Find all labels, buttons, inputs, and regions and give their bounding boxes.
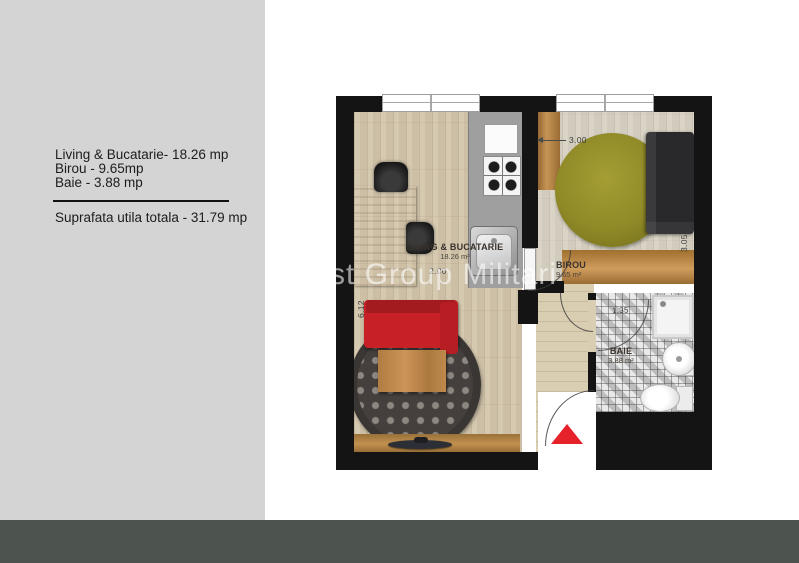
divider-line <box>53 200 229 202</box>
area-line-baie: Baie - 3.88 mp <box>55 176 255 190</box>
wall-living-birou <box>522 112 538 248</box>
floorplan-page: Living & Bucatarie- 18.26 mp Birou - 9.6… <box>0 0 799 563</box>
entrance-marker-triangle <box>551 424 583 444</box>
watermark: st Group Militari <box>330 258 799 292</box>
area-summary: Living & Bucatarie- 18.26 mp Birou - 9.6… <box>55 148 255 190</box>
bathroom-sink-drain <box>676 356 682 362</box>
dim-birou-height: 3.05 <box>679 234 689 252</box>
red-sofa-armrest <box>440 302 458 354</box>
dim-line-birou <box>540 140 566 141</box>
window-birou <box>556 94 654 112</box>
wall-corner-bottom-right <box>594 412 712 470</box>
dim-arrow-birou <box>537 137 543 143</box>
baie-label: BAIE <box>598 346 644 356</box>
shower-drain <box>660 301 666 307</box>
office-sofa <box>646 132 694 234</box>
dining-chair-top <box>374 162 408 192</box>
toilet-bowl <box>640 384 680 412</box>
footer-bar: Scara 1 - Apartament 8 <box>0 520 799 563</box>
shower-tray <box>652 295 694 339</box>
window-living <box>382 94 480 112</box>
dim-baie-width: 1.35 <box>612 306 629 316</box>
area-line-living: Living & Bucatarie- 18.26 mp <box>55 148 255 162</box>
wall-living-hall <box>518 290 538 324</box>
baie-label-group: BAIE 3.88 m² <box>598 346 644 365</box>
coffee-table <box>378 350 446 392</box>
stove <box>483 156 521 196</box>
dim-living-height: 6.12 <box>356 300 366 318</box>
info-panel: Living & Bucatarie- 18.26 mp Birou - 9.6… <box>0 0 265 522</box>
area-line-birou: Birou - 9.65mp <box>55 162 255 176</box>
dim-birou-width: 3.00 <box>569 135 587 145</box>
total-area-line: Suprafata utila totala - 31.79 mp <box>55 210 265 225</box>
baie-area: 3.88 m² <box>598 356 644 365</box>
tv-stand <box>414 437 428 443</box>
living-room-label: LIVING & BUCATARIE <box>398 242 512 252</box>
fridge <box>484 124 518 154</box>
